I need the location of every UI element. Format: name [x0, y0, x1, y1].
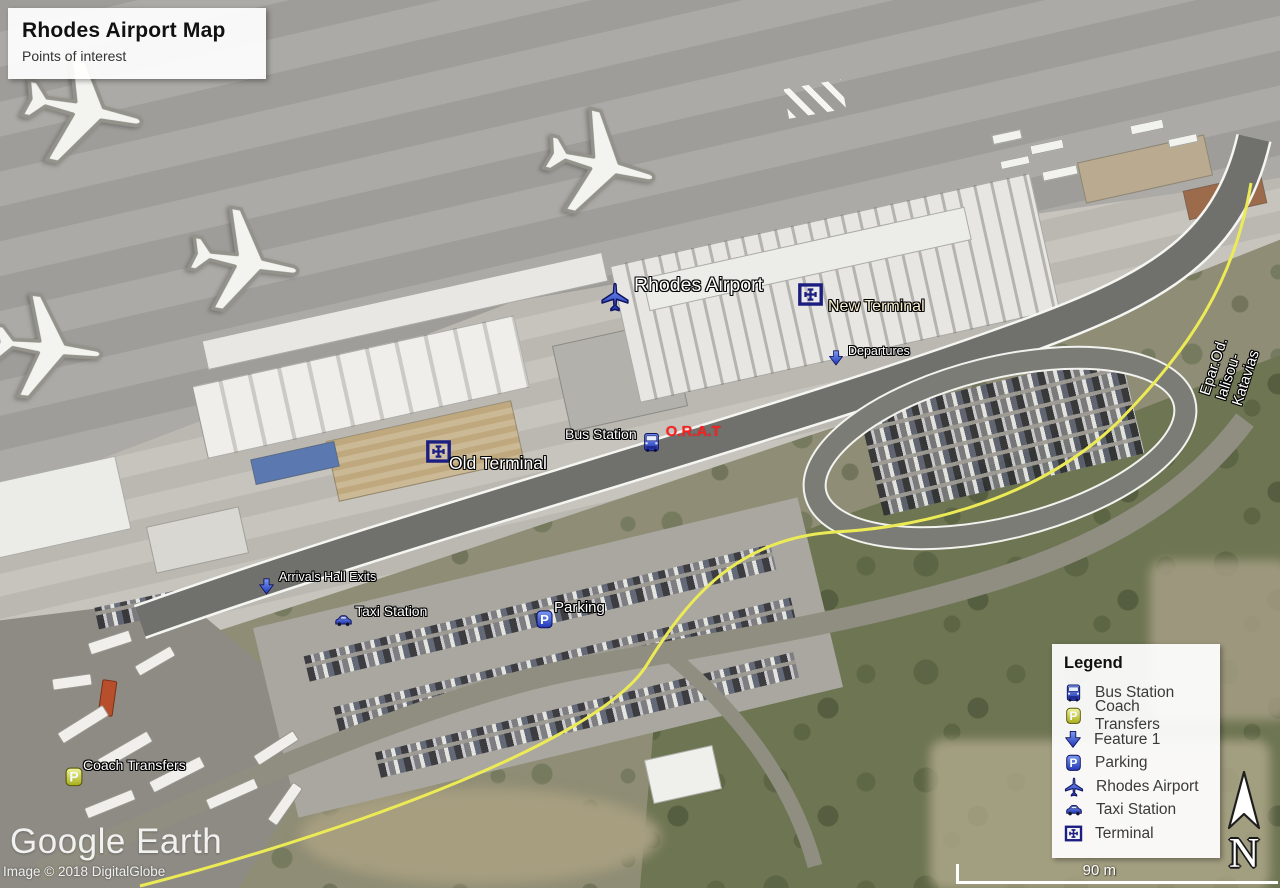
legend-item-terminal: Terminal	[1064, 822, 1208, 846]
parked-airplane-3	[0, 281, 115, 415]
taxi-icon[interactable]	[330, 611, 357, 630]
placemark-old-terminal[interactable]: Old Terminal	[424, 438, 547, 474]
north-arrow-icon	[1225, 770, 1263, 832]
placemark-taxi-station[interactable]: Taxi Station	[330, 603, 427, 630]
placemark-label[interactable]: Bus Station	[565, 426, 637, 442]
legend-item-label: Coach Transfers	[1095, 698, 1208, 734]
legend-item-rhodes-airport: Rhodes Airport	[1064, 775, 1208, 799]
legend-item-label: Rhodes Airport	[1096, 778, 1199, 796]
parking-icon	[1064, 753, 1083, 773]
placemark-departures[interactable]: Departures	[828, 344, 910, 368]
legend-box: Legend Bus Station Coach Transfers Featu…	[1052, 644, 1220, 858]
map-canvas[interactable]: Rhodes Airport New Terminal Departures B…	[0, 0, 1280, 888]
legend-item-taxi-station: Taxi Station	[1064, 799, 1208, 823]
placemark-label[interactable]: Rhodes Airport	[634, 274, 763, 297]
placemark-rhodes-airport[interactable]: Rhodes Airport	[600, 274, 763, 313]
arrow-down-icon	[1064, 730, 1082, 749]
legend-item-parking: Parking	[1064, 752, 1208, 776]
map-subtitle: Points of interest	[22, 48, 252, 64]
arrow-down-icon[interactable]	[258, 576, 275, 597]
placemark-label[interactable]: Departures	[848, 344, 910, 358]
placemark-label[interactable]: Arrivals Hall Exits	[279, 570, 376, 584]
map-title: Rhodes Airport Map	[22, 19, 252, 43]
placemark-bus-station[interactable]: Bus Station O.R.A.T	[565, 423, 721, 454]
orat-label[interactable]: O.R.A.T	[666, 423, 721, 440]
placemark-label[interactable]: Old Terminal	[449, 453, 547, 474]
arrow-down-icon[interactable]	[828, 348, 844, 368]
title-box: Rhodes Airport Map Points of interest	[8, 8, 266, 79]
parked-airplane-2	[175, 192, 314, 331]
coach-parking-icon	[1064, 706, 1083, 726]
terminal-icon	[1064, 824, 1083, 843]
placemark-label[interactable]: Coach Transfers	[83, 757, 186, 773]
airplane-icon[interactable]	[600, 281, 630, 313]
placemark-label[interactable]: Taxi Station	[355, 603, 427, 619]
bus-icon[interactable]	[641, 431, 662, 454]
north-compass: N	[1220, 770, 1268, 871]
north-letter: N	[1220, 837, 1268, 871]
taxi-icon	[1064, 801, 1084, 819]
imagery-attribution: Image © 2018 DigitalGlobe	[3, 864, 165, 879]
legend-item-label: Terminal	[1095, 825, 1154, 843]
placemark-parking[interactable]: Parking	[534, 599, 605, 631]
placemark-arrivals-hall-exits[interactable]: Arrivals Hall Exits	[258, 570, 376, 597]
legend-item-label: Taxi Station	[1096, 801, 1176, 819]
legend-title: Legend	[1064, 654, 1208, 673]
placemark-label[interactable]: Parking	[554, 599, 605, 616]
airplane-icon	[1064, 777, 1084, 797]
placemark-label[interactable]: New Terminal	[828, 298, 925, 316]
legend-item-label: Parking	[1095, 754, 1148, 772]
bus-icon	[1064, 683, 1083, 703]
terminal-icon[interactable]	[797, 281, 824, 308]
placemark-new-terminal[interactable]: New Terminal	[797, 281, 925, 316]
placemark-coach-transfers[interactable]: Coach Transfers	[63, 757, 186, 789]
google-earth-logo: Google Earth	[10, 822, 222, 862]
parking-icon[interactable]	[534, 608, 555, 631]
legend-item-coach-transfers: Coach Transfers	[1064, 705, 1208, 729]
scale-bar-label: 90 m	[1083, 862, 1116, 879]
legend-item-label: Feature 1	[1094, 731, 1160, 749]
coach-parking-icon[interactable]	[63, 765, 85, 789]
